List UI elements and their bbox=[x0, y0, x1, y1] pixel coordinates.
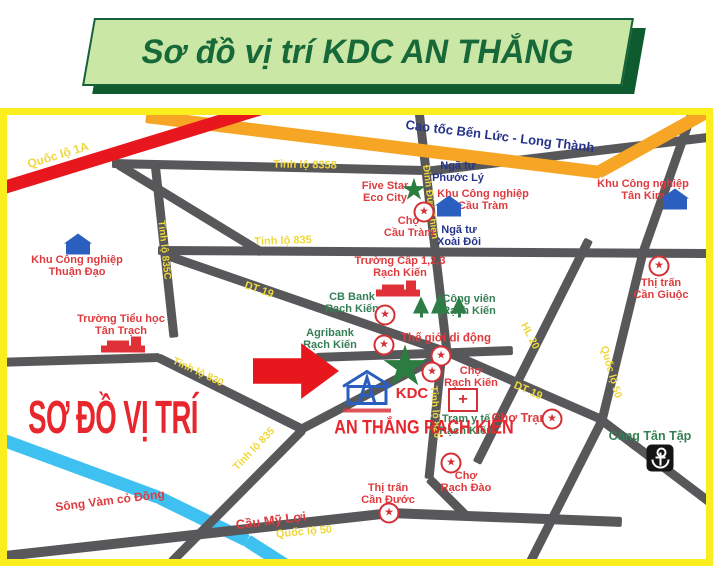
medal-icon-cho-tram: ★ bbox=[542, 409, 563, 430]
medal-icon-cho-rach-dao: ★ bbox=[441, 453, 462, 474]
poi-line: CB Bank bbox=[325, 291, 379, 303]
poi-line: Cảng Tân Tập bbox=[609, 430, 692, 444]
road-tinh-lo-830-w bbox=[0, 353, 160, 367]
poi-thi-tran-can-giuoc: Thị trấnCần Giuộc bbox=[633, 277, 688, 301]
kdc-logo-caption bbox=[343, 409, 391, 413]
poi-line: Rạch Đào bbox=[441, 482, 492, 494]
poi-line: Ngã tư bbox=[437, 224, 481, 236]
poi-line: Phước Lý bbox=[432, 172, 484, 184]
banner: Sơ đồ vị trí KDC AN THẮNG bbox=[88, 18, 628, 86]
house-icon-kdc-logo bbox=[338, 368, 396, 413]
poi-cb-bank-rach-kien: CB BankRạch Kiến bbox=[325, 291, 379, 315]
poi-line: Chợ bbox=[444, 365, 498, 377]
poi-line: Rạch Kiến bbox=[303, 339, 357, 351]
green-star-icon-five-star: ★ bbox=[401, 177, 428, 204]
road-ql-50-day-dong bbox=[391, 508, 622, 527]
poi-nga-tu-phuoc-ly: Ngã tưPhước Lý bbox=[432, 160, 484, 184]
poi-line: Rạch Kiến bbox=[355, 267, 446, 279]
school-icon-truong-tan-trach bbox=[101, 336, 145, 353]
building-icon-kcn-cau-tram bbox=[435, 196, 463, 217]
medal-icon-cb-bank: ★ bbox=[375, 305, 396, 326]
poi-agribank-rach-kien: AgribankRạch Kiến bbox=[303, 327, 357, 351]
map-frame: SƠ ĐỒ VỊ TRÍ Quốc lộ 1ATỉnh lộ 8358Tỉnh … bbox=[0, 108, 713, 566]
poi-song-vam-co-dong: Sông Vàm cỏ Đông bbox=[55, 488, 166, 514]
banner-face: Sơ đồ vị trí KDC AN THẮNG bbox=[82, 18, 634, 86]
poi-nga-tu-xoai-doi: Ngã tưXoài Đôi bbox=[437, 224, 481, 248]
poi-line: Cần Giuộc bbox=[633, 289, 688, 301]
medal-icon-thi-tran-can-giuoc: ★ bbox=[649, 256, 670, 277]
poi-kcn-thuan-dao: Khu Công nghiệpThuận Đạo bbox=[31, 254, 123, 278]
poi-line: Thuận Đạo bbox=[31, 266, 123, 278]
building-icon-kcn-tan-kim bbox=[661, 189, 689, 210]
location-map-page: Sơ đồ vị trí KDC AN THẮNG SƠ ĐỒ VỊ TRÍ Q… bbox=[0, 0, 713, 566]
poi-line: Sông Vàm cỏ Đông bbox=[55, 488, 166, 514]
poi-cho-rach-kien: ChợRạch Kiến bbox=[444, 365, 498, 389]
poi-line: AN THẮNG RẠCH KIẾN bbox=[334, 419, 513, 440]
road-tinh-lo-835-sw bbox=[168, 426, 306, 565]
medal-icon-thi-tran-can-duoc: ★ bbox=[379, 503, 400, 524]
poi-line: Trường Tiểu học bbox=[77, 313, 165, 325]
poi-truong-cap-123-rach-kien: Trường Cấp 1,2,3Rạch Kiến bbox=[355, 255, 446, 279]
poi-line: Xoài Đôi bbox=[437, 236, 481, 248]
poi-line: Trường Cấp 1,2,3 bbox=[355, 255, 446, 267]
building-icon-kcn-thuan-dao bbox=[64, 234, 92, 255]
road-label-tinh-lo-835: Tỉnh lộ 835 bbox=[254, 234, 312, 248]
poi-cang-tan-tap: Cảng Tân Tập bbox=[609, 430, 692, 444]
poi-cho-rach-dao: ChợRạch Đào bbox=[441, 470, 492, 494]
map-watermark: SƠ ĐỒ VỊ TRÍ bbox=[28, 390, 198, 444]
poi-line: Thị trấn bbox=[633, 277, 688, 289]
road-label-tinh-lo-8358: Tỉnh lộ 8358 bbox=[273, 158, 337, 171]
road-ql-50-nam bbox=[524, 418, 606, 566]
map-layer: SƠ ĐỒ VỊ TRÍ Quốc lộ 1ATỉnh lộ 8358Tỉnh … bbox=[0, 108, 713, 566]
poi-line: Agribank bbox=[303, 327, 357, 339]
cross-icon-tram-y-te: + bbox=[448, 388, 478, 412]
poi-line: Cầu Tràm bbox=[384, 227, 434, 239]
poi-kdc-an-thang-rach-kien: AN THẮNG RẠCH KIẾN bbox=[334, 419, 513, 440]
trees-icon-cong-vien bbox=[413, 293, 467, 318]
road-nhanh-ql1a bbox=[116, 160, 265, 256]
page-title: Sơ đồ vị trí KDC AN THẮNG bbox=[139, 33, 578, 72]
poi-line: Thị trấn bbox=[361, 482, 415, 494]
anchor-icon-cang-tan-tap bbox=[647, 445, 674, 472]
poi-line: Ngã tư bbox=[432, 160, 484, 172]
poi-line: Khu Công nghiệp bbox=[31, 254, 123, 266]
poi-truong-tieu-hoc-tan-trach: Trường Tiểu họcTân Trạch bbox=[77, 313, 165, 337]
poi-line: Rạch Kiến bbox=[325, 303, 379, 315]
